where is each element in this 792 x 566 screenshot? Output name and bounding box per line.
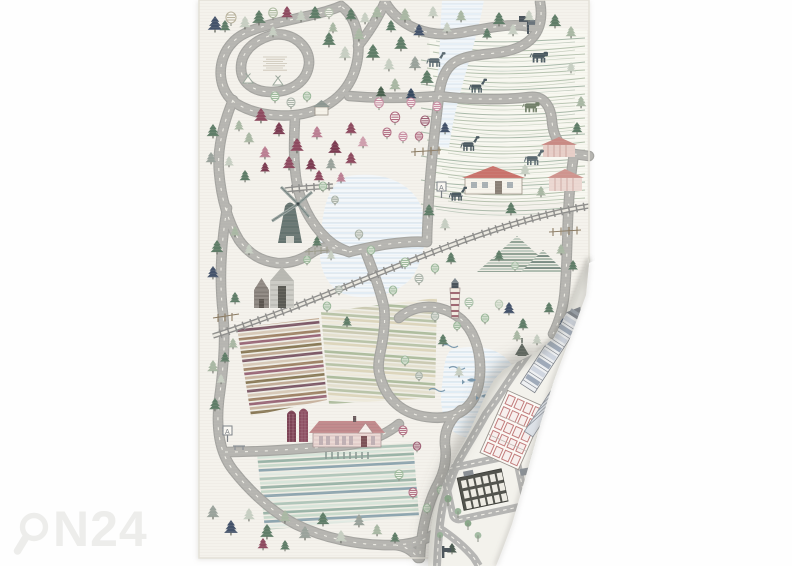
svg-text:N24: N24 [53,501,148,557]
